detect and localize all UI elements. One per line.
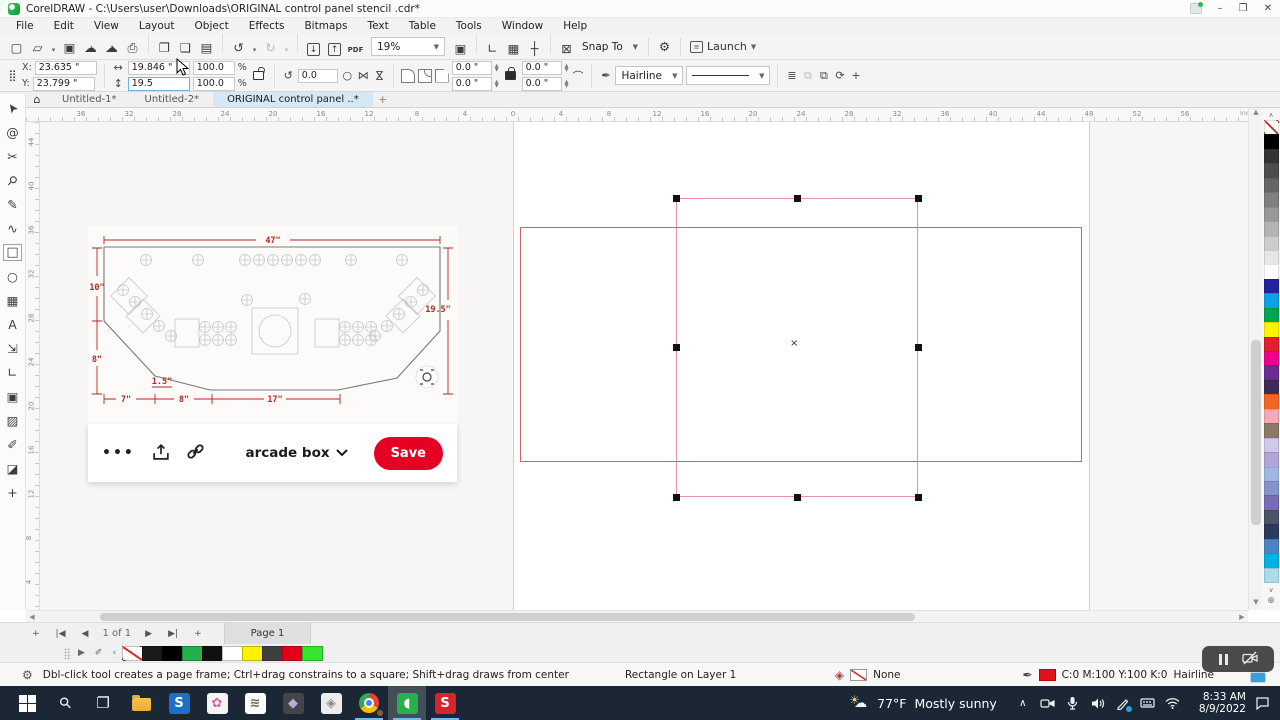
app-pink-icon: ✿ [207, 693, 228, 714]
spinner-icon[interactable]: ▲▼ [565, 64, 569, 72]
wrap-text-icon[interactable]: ≣ [785, 69, 798, 82]
coreldraw-icon: ◖ [397, 693, 418, 714]
color-swatch[interactable] [1264, 423, 1279, 438]
prev-page-button[interactable]: ◀ [74, 629, 97, 639]
toolbar-separator [222, 34, 223, 52]
taskbar-app-app-gray[interactable]: ◈ [312, 686, 350, 720]
close-button[interactable]: ✕ [1264, 3, 1272, 14]
color-swatch[interactable] [1264, 337, 1279, 352]
show-guidelines-button[interactable]: ┼ [525, 38, 544, 58]
redo-icon: ↻ [265, 40, 275, 55]
menu-window[interactable]: Window [492, 20, 553, 32]
zoom-tool[interactable]: ⚲ [1, 168, 25, 192]
mouse-cursor [176, 58, 189, 77]
wifi-icon[interactable] [1165, 695, 1181, 711]
ruler-label: 20 [749, 110, 758, 118]
scale-y-field[interactable]: 100.0 [193, 77, 235, 91]
screen-recorder-overlay [1202, 646, 1274, 672]
color-swatch[interactable] [1264, 236, 1279, 251]
taskbar-app-search[interactable]: ⚲ [46, 686, 84, 720]
ruler-label: 48 [1085, 110, 1094, 118]
launch-icon: ≡ [690, 41, 703, 53]
drop-shadow-tool-icon: ▣ [7, 389, 19, 404]
gear-icon[interactable]: ⚙ [22, 668, 33, 682]
polygon-tool[interactable]: ▦ [1, 288, 25, 312]
outline-color-swatch [1039, 669, 1056, 681]
color-swatch[interactable] [1264, 178, 1279, 193]
add-page-right-button[interactable]: + [186, 629, 210, 639]
full-screen-preview-icon: ▣ [455, 41, 467, 56]
duplicate-button[interactable]: ▤ [197, 37, 216, 57]
system-tray: ∧ [1015, 695, 1181, 711]
property-bar: ⣿ X:23.635 " Y:23.799 " ↔19.846 " ↕19.5 … [0, 60, 1280, 92]
ruler-label: 40 [989, 110, 998, 118]
selection-handle[interactable] [673, 494, 680, 501]
ruler-label: 56 [1181, 110, 1190, 118]
speaker-icon[interactable] [1090, 695, 1106, 711]
cloud-upload-icon: ☁↑ [105, 40, 118, 55]
cloud-download-button[interactable]: ☁↓ [81, 37, 100, 57]
x-position-field[interactable]: 23.635 " [35, 61, 97, 75]
undo-button[interactable]: ↺ [229, 37, 248, 57]
selection-handle[interactable] [915, 195, 922, 202]
document-palette: ▶ ✐ ‹ [0, 644, 1280, 662]
palette-drag-handle[interactable] [64, 648, 71, 659]
taskbar-app-file-explorer[interactable] [122, 686, 160, 720]
color-swatch-none[interactable] [122, 646, 143, 661]
text-tool[interactable]: A [1, 312, 25, 336]
color-swatch[interactable] [1264, 221, 1279, 236]
open-button[interactable]: ▱ [28, 37, 47, 57]
freehand-tool[interactable]: ✎ [1, 192, 25, 216]
arrow-icon: ↓ [88, 45, 94, 53]
ruler-label: 16 [317, 110, 326, 118]
color-swatch-none[interactable] [1264, 120, 1279, 135]
copy-link-button[interactable] [187, 443, 204, 463]
selection-handle[interactable] [794, 195, 801, 202]
palette-flyout-button[interactable]: ▶ [75, 648, 88, 658]
weather-temp: 77°F [877, 696, 906, 711]
ruler-label: 16 [701, 110, 710, 118]
selection-handle[interactable] [673, 195, 680, 202]
ruler-label: 28 [27, 314, 35, 323]
restore-button[interactable]: ❐ [1239, 3, 1248, 14]
scalloped-corner-button[interactable] [418, 69, 432, 83]
corner-radius-bl-field[interactable]: 0.0 " [452, 77, 492, 91]
color-swatch[interactable] [1264, 568, 1279, 583]
color-swatch[interactable] [1264, 149, 1279, 164]
apply-to-duplicate-icon: ○ [341, 69, 354, 82]
spinner-icon[interactable]: ▲▼ [495, 80, 499, 88]
rotation-angle-field[interactable]: 0.0 [298, 69, 338, 83]
search-icon: ⚲ [55, 693, 76, 714]
taskbar-app-app-s-blue[interactable]: S [160, 686, 198, 720]
clock[interactable]: 8:33 AM 8/9/2022 [1199, 691, 1246, 715]
palette-options-button[interactable]: ⊕ [1267, 596, 1275, 610]
pin-save-bar: ••• arcade box Save [88, 424, 457, 482]
pick-tool[interactable]: ➤ [1, 96, 25, 120]
redo-button[interactable]: ↻ [261, 37, 280, 57]
color-swatch[interactable] [1264, 438, 1279, 453]
vertical-scrollbar[interactable]: ▲ ▼ [1248, 108, 1262, 610]
open-dropdown-icon: ▾ [52, 46, 56, 54]
chevron-down-icon: ▼ [753, 72, 764, 80]
color-swatch[interactable] [302, 646, 323, 661]
weather-widget[interactable]: ☀☁ 77°F Mostly sunny [849, 695, 997, 711]
freehand-tool-icon: ✎ [7, 197, 17, 212]
selected-object-info: Rectangle on Layer 1 [625, 669, 736, 681]
ruler-label: 12 [27, 490, 35, 499]
fill-label: None [873, 669, 900, 681]
save-icon: ▣ [64, 40, 76, 55]
minimize-button[interactable]: – [1218, 3, 1223, 14]
outline-width-dropdown[interactable]: Hairline ▼ [615, 66, 683, 85]
to-front-icon[interactable]: ⧉ [801, 69, 814, 83]
color-swatch[interactable] [262, 646, 283, 661]
artistic-media-tool[interactable]: ∿ [1, 216, 25, 240]
transparency-tool[interactable]: ▨ [1, 408, 25, 432]
snap-off-button[interactable]: ⊠ [557, 38, 576, 58]
propbar-separator [274, 64, 275, 88]
save-pin-button[interactable]: Save [374, 437, 443, 470]
corner-radius-tl-field[interactable]: 0.0 " [452, 61, 492, 75]
selection-handle[interactable] [794, 494, 801, 501]
color-swatch[interactable] [1264, 510, 1279, 525]
vertical-ruler[interactable]: 44403632282420161284 [26, 122, 40, 610]
home-tab[interactable]: ⌂ [26, 92, 48, 107]
task-view-icon: ❐ [96, 694, 109, 712]
print-icon: ⎙ [127, 40, 137, 56]
horizontal-ruler[interactable]: 3632282420161284048121620242832364044485… [26, 108, 1248, 122]
app-red-s-icon: S [435, 693, 456, 714]
scale-x-field[interactable]: 100.0 [193, 61, 235, 75]
toolbar-separator [476, 35, 477, 53]
ruler-label: 40 [27, 182, 35, 191]
status-bar: ⚙ Dbl-click tool creates a page frame; C… [0, 662, 1280, 686]
next-page-button[interactable]: ▶ [137, 629, 160, 639]
color-swatch[interactable] [1264, 481, 1279, 496]
scroll-down-icon[interactable]: ▼ [1249, 598, 1263, 610]
color-swatch[interactable] [1264, 264, 1279, 279]
color-swatch[interactable] [282, 646, 303, 661]
chevron-down-icon: ▼ [666, 72, 677, 80]
document-tab-3[interactable]: ORIGINAL control panel ..* [213, 92, 373, 107]
lock-ratio-button[interactable] [253, 71, 264, 80]
new-document-tab-button[interactable]: + [373, 92, 393, 107]
save-button[interactable]: ▣ [60, 37, 79, 57]
object-height-field[interactable]: 19.5 [128, 77, 190, 91]
chevron-down-icon: ▼ [627, 43, 638, 51]
taskbar-app-coreldraw[interactable]: ◖ [388, 686, 426, 720]
color-palette: ∧ ∨ ⊕ [1262, 108, 1280, 610]
menu-text[interactable]: Text [358, 20, 399, 32]
menu-bitmaps[interactable]: Bitmaps [294, 20, 357, 32]
color-swatch[interactable] [162, 646, 183, 661]
color-swatch[interactable] [1264, 524, 1279, 539]
ruler-label: 28 [845, 110, 854, 118]
paste-button[interactable]: ❏ [176, 37, 195, 57]
menu-object[interactable]: Object [185, 20, 239, 32]
ellipse-tool-icon: ○ [7, 269, 18, 284]
last-page-button[interactable]: ▶| [160, 629, 186, 639]
ruler-label: 36 [941, 110, 950, 118]
copy-icon: ❐ [159, 40, 170, 55]
coreldraw-window: CorelDRAW - C:\Users\user\Downloads\ORIG… [0, 0, 1280, 720]
dimension-tool[interactable]: ⇲ [1, 336, 25, 360]
toolbox: ➤@✂⚲✎∿□○▦A⇲∟▣▨✐◪+ [0, 94, 26, 610]
ruler-label: 8 [607, 110, 611, 118]
microphone-icon[interactable] [1065, 695, 1081, 711]
meet-now-icon[interactable] [1040, 695, 1056, 711]
account-status-icon[interactable] [1190, 3, 1202, 14]
stop-webcam-button[interactable] [1242, 651, 1258, 668]
open-icon: ▱ [33, 40, 43, 55]
add-page-left-button[interactable]: + [24, 629, 48, 639]
menu-table[interactable]: Table [399, 20, 446, 32]
menu-help[interactable]: Help [553, 20, 597, 32]
ruler-label: 16 [27, 446, 35, 455]
show-rulers-button[interactable]: ∟ [483, 38, 502, 58]
spinner-icon[interactable]: ▲▼ [565, 80, 569, 88]
action-center-icon[interactable] [1254, 695, 1270, 711]
color-swatch[interactable] [1264, 539, 1279, 554]
selection-handle[interactable] [673, 344, 680, 351]
taskbar-app-app-red-s[interactable]: S [426, 686, 464, 720]
shape-tool[interactable]: @ [1, 120, 25, 144]
color-swatch[interactable] [1264, 380, 1279, 395]
ruler-label: 44 [27, 138, 35, 147]
menu-tools[interactable]: Tools [446, 20, 492, 32]
color-swatch[interactable] [182, 646, 203, 661]
color-swatch[interactable] [1264, 163, 1279, 178]
fillet-scallop-chamfer-icon: ⌒ [571, 68, 584, 84]
color-swatch[interactable] [1264, 452, 1279, 467]
selection-center-marker[interactable]: × [790, 338, 798, 349]
snap-to-label: Snap To [582, 41, 623, 53]
redo-dropdown[interactable]: ▾ [282, 40, 291, 60]
vertical-scroll-thumb[interactable] [1251, 340, 1261, 525]
corner-radius-tr-field[interactable]: 0.0 " [522, 61, 562, 75]
clock-time: 8:33 AM [1203, 691, 1246, 703]
ruler-label: 32 [125, 110, 134, 118]
crop-tool[interactable]: ✂ [1, 144, 25, 168]
ruler-label: 8 [26, 536, 33, 540]
scroll-up-icon[interactable]: ▲ [1249, 108, 1263, 120]
interactive-fill-tool-icon: ◪ [7, 461, 19, 476]
propbar-separator [104, 64, 105, 88]
eyedropper-icon[interactable]: ✐ [92, 648, 106, 658]
window-title: CorelDRAW - C:\Users\user\Downloads\ORIG… [26, 3, 1190, 15]
outline-pen-icon: ✒ [599, 69, 612, 82]
drawing-canvas[interactable]: 47" 10" 8" 1.5" 7" 8" 17" 19.5" ••• [40, 122, 1248, 610]
eyedropper-tool-icon: ✐ [7, 437, 17, 452]
color-swatch[interactable] [1264, 192, 1279, 207]
color-swatch[interactable] [202, 646, 223, 661]
crop-tool-icon: ✂ [7, 149, 17, 164]
page-indicator: 1 of 1 [96, 628, 137, 639]
drop-shadow-tool[interactable]: ▣ [1, 384, 25, 408]
notification-dot [1126, 706, 1132, 712]
menu-file[interactable]: File [6, 20, 44, 32]
copy-button[interactable]: ❐ [155, 37, 174, 57]
board-name: arcade box [246, 445, 330, 461]
show-grid-button[interactable]: ▦ [504, 38, 523, 58]
color-swatch[interactable] [242, 646, 263, 661]
taskbar-app-chrome[interactable] [350, 686, 388, 720]
pen-settings-icon[interactable] [1115, 695, 1131, 711]
menu-effects[interactable]: Effects [239, 20, 295, 32]
options-button[interactable]: ⚙ [655, 37, 674, 57]
ellipse-tool[interactable]: ○ [1, 264, 25, 288]
convert-to-curves-icon[interactable]: ⟳ [833, 69, 846, 82]
ruler-label: 12 [365, 110, 374, 118]
chamfered-corner-button[interactable] [435, 69, 449, 83]
color-swatch[interactable] [1264, 250, 1279, 265]
dim-bottom-left: 7" [121, 395, 131, 404]
dim-left-lower: 8" [92, 355, 102, 365]
eyedropper-tool[interactable]: ✐ [1, 432, 25, 456]
y-position-field[interactable]: 23.799 " [33, 77, 95, 91]
color-swatch[interactable] [1264, 495, 1279, 510]
color-swatch[interactable] [1264, 134, 1279, 149]
page-tab[interactable]: Page 1 [224, 623, 312, 645]
height-icon: ↕ [112, 77, 125, 90]
color-swatch[interactable] [1264, 394, 1279, 409]
show-grid-icon: ▦ [508, 41, 520, 56]
publish-pdf-button[interactable]: PDF [346, 40, 365, 60]
full-screen-preview-button[interactable]: ▣ [451, 38, 470, 58]
shape-tool-icon: @ [6, 125, 19, 140]
menu-edit[interactable]: Edit [44, 20, 84, 32]
color-swatch[interactable] [1264, 322, 1279, 337]
launch-dropdown[interactable]: ≡ Launch ▼ [690, 40, 756, 53]
link-icon [187, 443, 204, 460]
palette-scroll-left[interactable]: ‹ [109, 648, 119, 658]
taskbar-app-app-notes[interactable]: ≋ [236, 686, 274, 720]
rectangle-tool[interactable]: □ [1, 240, 25, 264]
toolbar-separator [297, 34, 298, 52]
hidden-icons-chevron[interactable]: ∧ [1015, 695, 1031, 711]
import-button[interactable]: ↓ [304, 40, 323, 60]
panel-outline [104, 247, 440, 390]
color-swatch[interactable] [1264, 365, 1279, 380]
undo-dropdown[interactable]: ▾ [250, 40, 259, 60]
taskbar-app-task-view[interactable]: ❐ [84, 686, 122, 720]
color-swatch[interactable] [1264, 308, 1279, 323]
color-swatch[interactable] [142, 646, 163, 661]
coreldraw-logo-icon [8, 3, 20, 15]
fill-color-icon: ◈ [835, 668, 844, 682]
print-button[interactable]: ⎙ [123, 38, 142, 58]
spinner-icon[interactable]: ▲▼ [495, 64, 499, 72]
dim-top: 47" [265, 236, 280, 246]
app-dark-icon: ◆ [283, 693, 304, 714]
customize-plus-icon[interactable]: + [849, 69, 862, 82]
add-tools[interactable]: + [1, 480, 25, 504]
ruler-label: 12 [653, 110, 662, 118]
color-swatch[interactable] [1264, 409, 1279, 424]
touch-keyboard-icon[interactable] [1140, 695, 1156, 711]
horizontal-scroll-thumb[interactable] [100, 613, 915, 621]
palette-scroll-down[interactable]: ∨ [1268, 583, 1273, 596]
ruler-label: 24 [27, 358, 35, 367]
color-swatch[interactable] [1264, 553, 1279, 568]
connector-tool[interactable]: ∟ [1, 360, 25, 384]
share-button[interactable] [153, 444, 169, 463]
color-swatch[interactable] [1264, 207, 1279, 222]
lock-corners-button[interactable] [505, 71, 516, 80]
first-page-button[interactable]: |◀ [48, 629, 74, 639]
selection-handle[interactable] [915, 344, 922, 351]
zoom-level-value: 19% [377, 41, 400, 53]
new-document-button[interactable]: ▢ [7, 37, 26, 57]
document-tab-1[interactable]: Untitled-1* [48, 92, 131, 107]
more-options-button[interactable]: ••• [102, 445, 135, 461]
show-guidelines-icon: ┼ [531, 41, 539, 56]
open-dropdown[interactable]: ▾ [49, 40, 58, 60]
interactive-fill-tool[interactable]: ◪ [1, 456, 25, 480]
profile-badge [376, 709, 384, 717]
corner-radius-br-field[interactable]: 0.0 " [522, 77, 562, 91]
status-hint: Dbl-click tool creates a page frame; Ctr… [43, 669, 569, 681]
rotation-icon: ↺ [282, 69, 295, 82]
horizontal-scrollbar[interactable]: ◀ ▶ [26, 610, 1248, 622]
color-swatch[interactable] [1264, 351, 1279, 366]
menu-layout[interactable]: Layout [129, 20, 185, 32]
line-style-dropdown[interactable]: ▼ [686, 66, 770, 85]
cloud-upload-button[interactable]: ☁↑ [102, 37, 121, 57]
zoom-level-combo[interactable]: 19% ▼ [371, 37, 445, 56]
outline-color-values: C:0 M:100 Y:100 K:0 [1062, 669, 1168, 681]
taskbar-app-start[interactable] [8, 686, 46, 720]
to-back-icon[interactable]: ⧉ [817, 69, 830, 83]
board-selector[interactable]: arcade box [246, 445, 348, 461]
color-swatch[interactable] [1264, 279, 1279, 294]
taskbar-app-app-pink[interactable]: ✿ [198, 686, 236, 720]
ruler-label: 52 [1133, 110, 1142, 118]
sun-cloud-icon: ☀☁ [849, 695, 869, 711]
mirror-vertical-button[interactable]: ⋈ [373, 69, 386, 82]
color-swatch[interactable] [1264, 293, 1279, 308]
taskbar-app-app-dark[interactable]: ◆ [274, 686, 312, 720]
arrow-icon: ↑ [109, 45, 115, 53]
color-swatch[interactable] [222, 646, 243, 661]
ruler-label: 32 [893, 110, 902, 118]
windows-logo-icon [19, 695, 36, 712]
document-tab-2[interactable]: Untitled-2* [131, 92, 214, 107]
document-tab-bar: ⌂ Untitled-1*Untitled-2*ORIGINAL control… [0, 92, 1280, 108]
toolbar-separator [648, 38, 649, 56]
pause-recording-button[interactable] [1219, 654, 1228, 665]
color-swatch[interactable] [1264, 467, 1279, 482]
menu-view[interactable]: View [84, 20, 129, 32]
export-button[interactable]: ↑ [325, 40, 344, 60]
camera-off-icon [1242, 651, 1258, 665]
ruler-label: 0 [511, 110, 515, 118]
zoom-tool-icon: ⚲ [4, 171, 21, 188]
rectangle-tool-icon: □ [3, 244, 21, 261]
ruler-label: 4 [559, 110, 563, 118]
mirror-horizontal-button[interactable]: ⋈ [357, 69, 370, 82]
show-rulers-icon: ∟ [487, 41, 497, 56]
lens-icon[interactable] [416, 366, 438, 388]
selection-handle[interactable] [915, 494, 922, 501]
snap-to-dropdown[interactable]: Snap To ▼ [577, 37, 643, 56]
reference-image-card: 47" 10" 8" 1.5" 7" 8" 17" 19.5" [88, 226, 458, 424]
launch-label: Launch [707, 40, 747, 53]
round-corner-button[interactable] [401, 69, 415, 83]
import-icon: ↓ [307, 43, 320, 56]
